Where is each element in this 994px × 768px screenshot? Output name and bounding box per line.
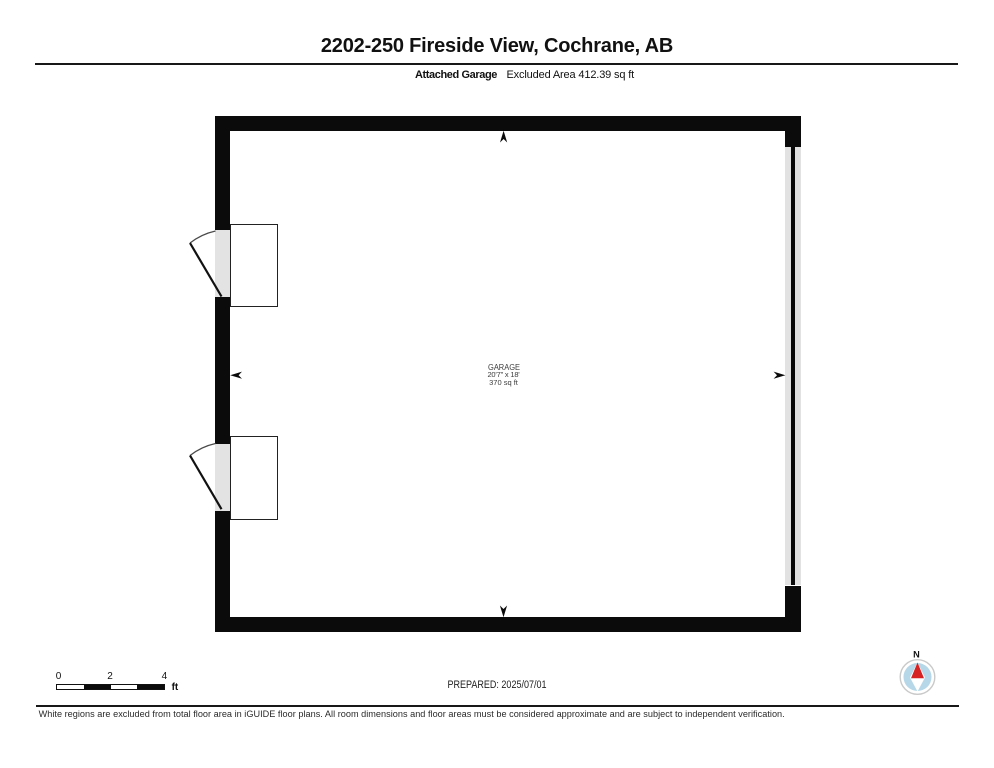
svg-text:N: N bbox=[913, 650, 920, 660]
